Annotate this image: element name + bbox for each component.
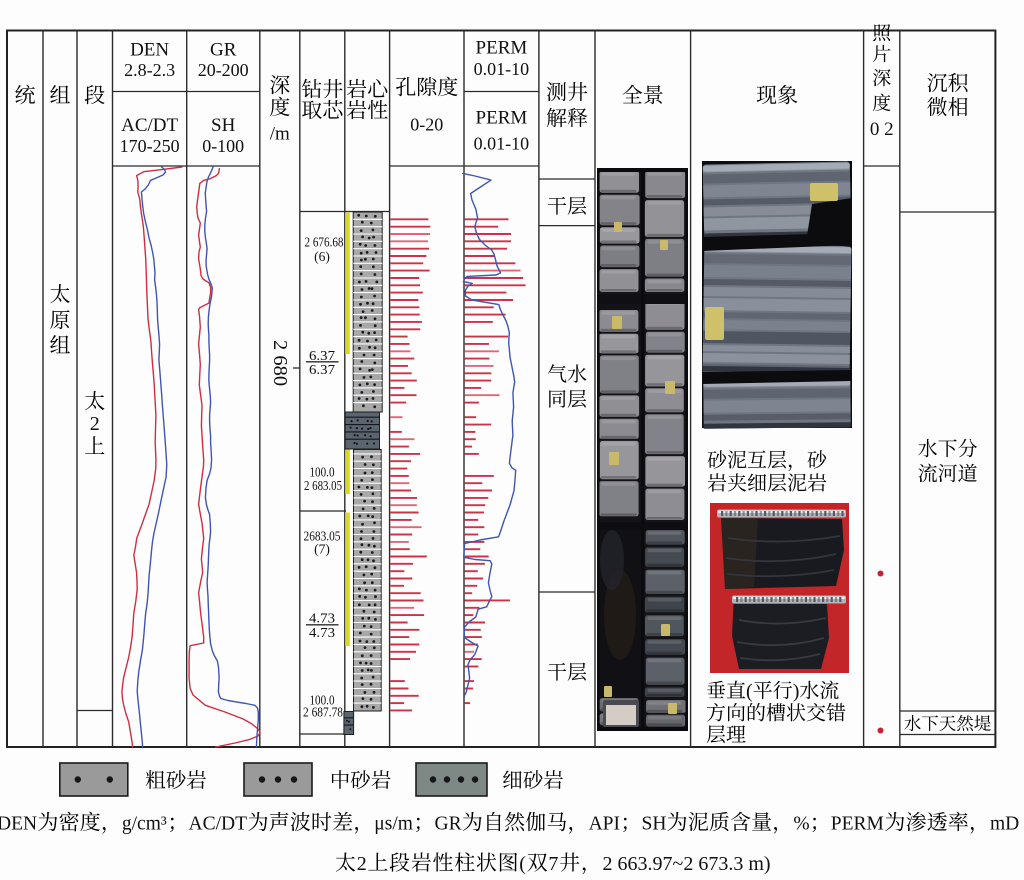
svg-text:2 683.05: 2 683.05	[304, 478, 342, 493]
svg-text:PERM: PERM	[476, 38, 528, 59]
svg-text:(6): (6)	[314, 249, 330, 264]
svg-text:API: API	[589, 814, 620, 835]
svg-text:μs/m: μs/m	[374, 814, 413, 835]
svg-text:): )	[793, 681, 800, 703]
svg-text:AC/DT: AC/DT	[121, 115, 178, 136]
svg-text:4.73: 4.73	[309, 611, 335, 626]
svg-text:mD: mD	[990, 814, 1019, 835]
svg-text:%: %	[793, 814, 809, 835]
svg-text:2 687.78: 2 687.78	[303, 705, 343, 720]
svg-text:0-100: 0-100	[202, 136, 244, 156]
svg-text:4.73: 4.73	[309, 625, 335, 640]
svg-text:2 663.97~2 673.3 m): 2 663.97~2 673.3 m)	[603, 853, 771, 875]
svg-text:PERM: PERM	[831, 814, 884, 835]
svg-text:SH: SH	[211, 115, 236, 136]
svg-text:SH: SH	[642, 814, 667, 835]
svg-text:0.01-10: 0.01-10	[474, 59, 530, 79]
svg-text:0.01-10: 0.01-10	[474, 134, 530, 154]
svg-text:(7): (7)	[314, 542, 330, 557]
svg-text:AC/DT: AC/DT	[189, 814, 248, 835]
svg-text:0-20: 0-20	[410, 115, 443, 135]
svg-text:g/cm³: g/cm³	[122, 814, 167, 835]
svg-text:DEN: DEN	[0, 814, 37, 835]
svg-text:6.37: 6.37	[309, 362, 335, 377]
svg-text:2.8-2.3: 2.8-2.3	[124, 60, 175, 80]
svg-text:(: (	[519, 853, 526, 875]
svg-text:2: 2	[357, 853, 367, 875]
svg-text:DEN: DEN	[130, 40, 169, 61]
svg-text:0 2: 0 2	[870, 119, 894, 140]
svg-text:/m: /m	[270, 124, 290, 145]
svg-text:GR: GR	[210, 40, 237, 61]
svg-text:20-200: 20-200	[198, 60, 249, 80]
svg-text:6.37: 6.37	[309, 348, 335, 363]
svg-text:2 676.68: 2 676.68	[305, 235, 344, 250]
svg-text:2: 2	[90, 413, 100, 435]
svg-text:170-250: 170-250	[120, 136, 180, 156]
svg-text:PERM: PERM	[476, 108, 528, 129]
svg-text:2 680: 2 680	[269, 340, 291, 386]
svg-text:(: (	[746, 681, 753, 703]
svg-text:GR: GR	[435, 814, 462, 835]
svg-text:7: 7	[548, 853, 558, 875]
